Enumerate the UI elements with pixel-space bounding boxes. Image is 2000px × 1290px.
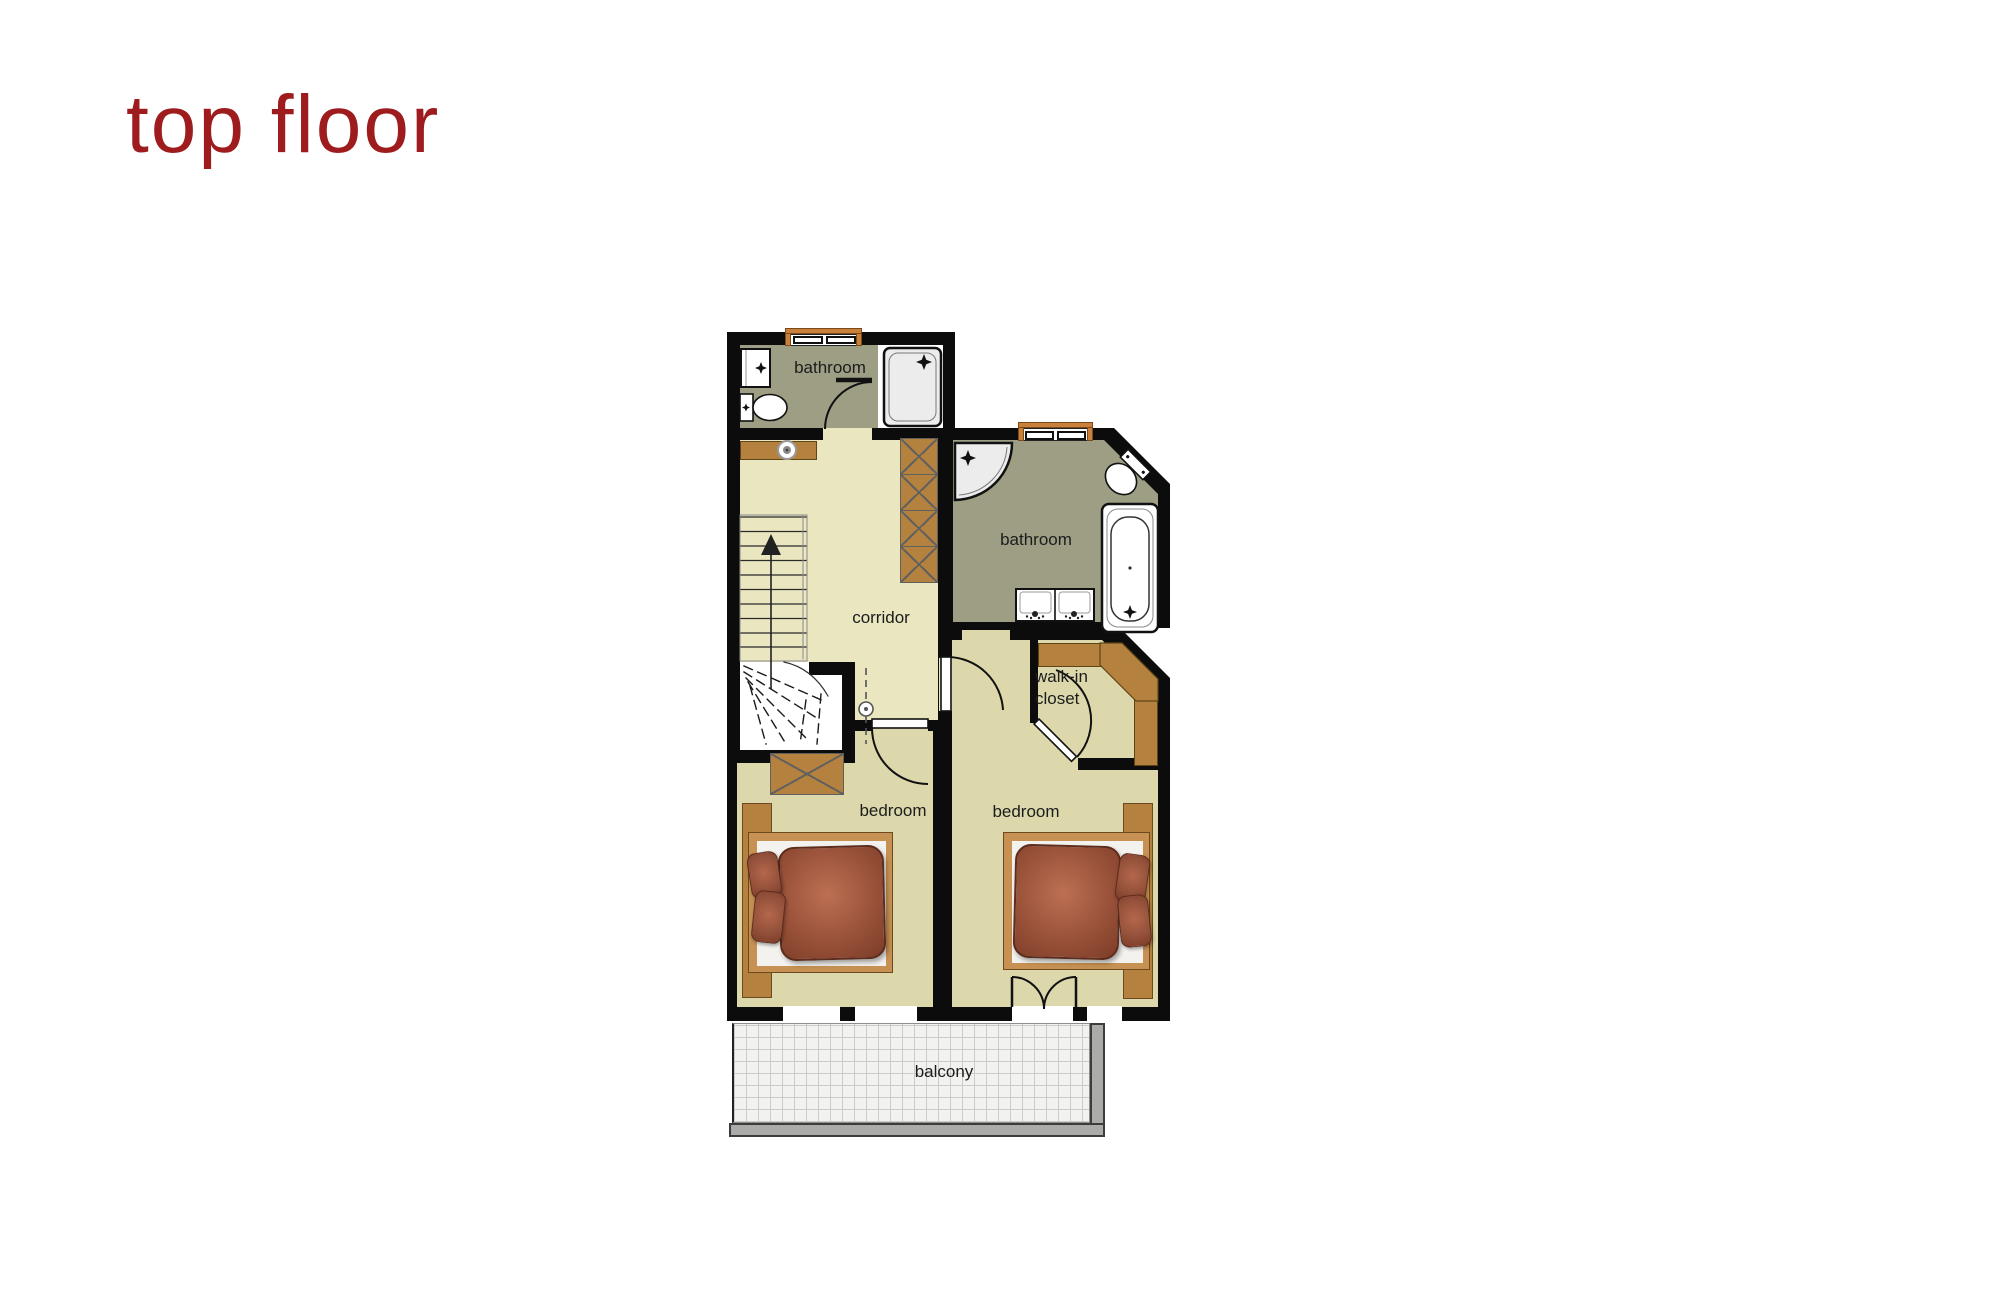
bathroom-top-door-gap [823, 428, 872, 442]
pillow-left-2 [750, 890, 786, 945]
wardrobe-box-bedroom-left [770, 753, 844, 795]
room-label-corridor: corridor [852, 608, 910, 628]
corridor-door-gap [939, 658, 952, 711]
pillow-right-2 [1116, 894, 1152, 949]
room-label-bedroom-right: bedroom [992, 802, 1059, 822]
balcony-window-gap-2 [855, 1006, 917, 1022]
bedroom-left-door-gap [872, 728, 928, 732]
shower-alcove-floor [878, 345, 943, 428]
corridor-floor-strip [855, 662, 938, 720]
balcony-window-gap-3 [1087, 1006, 1122, 1022]
room-label-bedroom-left: bedroom [859, 801, 926, 821]
closet-wardrobe-right [1134, 694, 1158, 766]
room-label-walk-in-line1: walk-in [1035, 667, 1088, 687]
stairwell-floor [740, 662, 842, 750]
duvet-right [1013, 844, 1122, 961]
stairwell-wall-side [842, 662, 855, 750]
balcony-french-door-gap [1012, 1006, 1073, 1022]
page: top floor [0, 0, 2000, 1290]
balcony-deck [732, 1023, 1090, 1123]
room-label-balcony: balcony [915, 1062, 974, 1082]
duvet-left [778, 845, 887, 962]
console-table [740, 441, 817, 460]
closet-wardrobe-top [1038, 643, 1104, 667]
bedroom-left-floor-upper [855, 731, 933, 763]
window-bathroom-right [1018, 422, 1093, 443]
room-label-bathroom-top: bathroom [794, 358, 866, 378]
page-title: top floor [126, 84, 440, 166]
room-label-walk-in-line2: closet [1035, 689, 1079, 709]
wardrobe-column [900, 438, 938, 583]
balcony-railing-right [1090, 1023, 1105, 1137]
window-bathroom-top [785, 328, 862, 347]
room-label-bathroom-right: bathroom [1000, 530, 1072, 550]
bathroom-right-door-gap [962, 630, 1010, 644]
balcony-window-gap-1 [783, 1006, 840, 1022]
balcony-railing-bottom [729, 1123, 1105, 1137]
